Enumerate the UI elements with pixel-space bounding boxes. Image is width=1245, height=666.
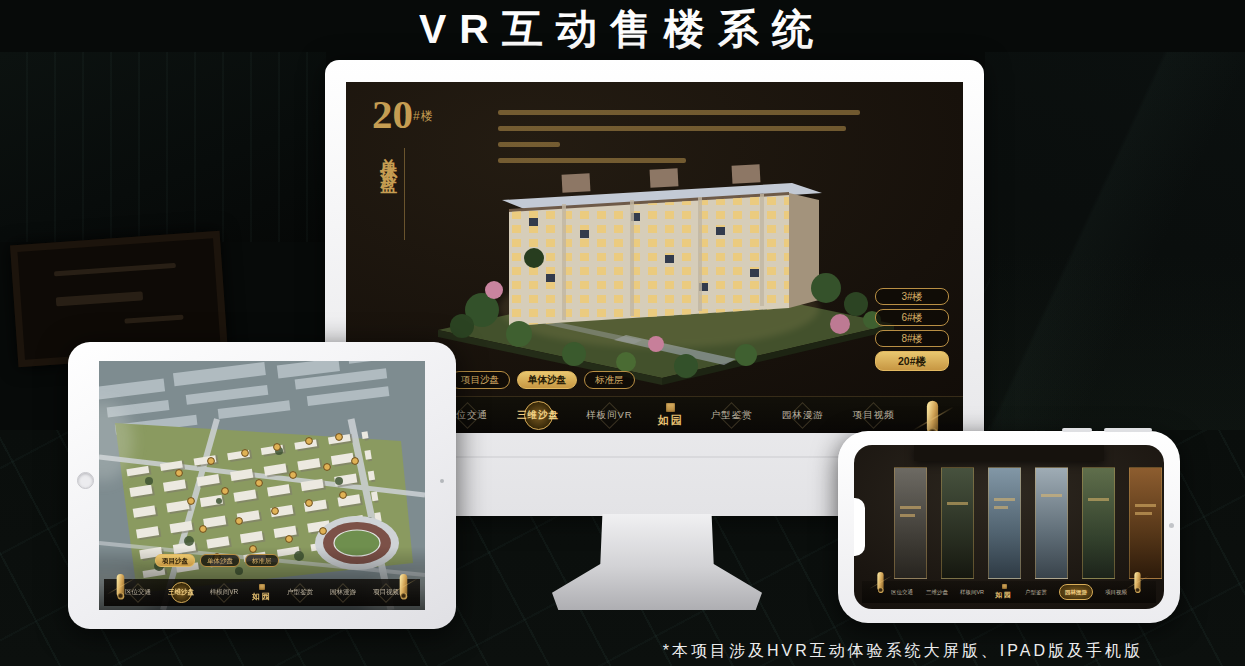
nav-item-3d-sandtable[interactable]: 三维沙盘 [925, 585, 949, 599]
brand-logo: 如园 [252, 584, 272, 602]
nav-item-project-video[interactable]: 项目视频 [851, 401, 897, 429]
seal-stamp-icon [666, 403, 675, 412]
scene-panel[interactable] [941, 467, 974, 579]
brand-logo: 如园 [658, 403, 684, 428]
nav-item-showroom-vr[interactable]: 样板间VR [586, 401, 633, 429]
nav-item-unit-gallery[interactable]: 户型鉴赏 [1024, 585, 1048, 599]
nav-item-location[interactable]: 区位交通 [890, 585, 914, 599]
scene-panel[interactable] [894, 467, 927, 579]
power-button[interactable] [1104, 428, 1152, 432]
camera-icon [440, 479, 444, 483]
nav-item-showroom-vr[interactable]: 样板间VR [209, 583, 239, 603]
aerial-sandtable-view[interactable] [99, 361, 425, 610]
subtab-single-sandtable[interactable]: 单体沙盘 [517, 371, 577, 389]
scene-panel[interactable] [1129, 467, 1162, 579]
nav-item-showroom-vr[interactable]: 样板间VR [960, 585, 984, 599]
nav-item-unit-gallery[interactable]: 户型鉴赏 [285, 583, 315, 603]
floor-button[interactable]: 3#楼 [875, 288, 949, 305]
nav-item-garden-tour[interactable]: 园林漫游 [780, 401, 826, 429]
scene-panel[interactable] [1082, 467, 1115, 579]
section-title-vertical: 单体沙盘 [377, 144, 400, 168]
text-line [498, 110, 860, 115]
subtab-group: 项目沙盘 单体沙盘 标准层 [450, 371, 635, 389]
home-button[interactable] [77, 472, 94, 489]
floor-button[interactable]: 6#楼 [875, 309, 949, 326]
nav-item-garden-tour[interactable]: 园林漫游 [1059, 584, 1093, 600]
nav-item-garden-tour[interactable]: 园林漫游 [328, 583, 358, 603]
floor-button[interactable]: 8#楼 [875, 330, 949, 347]
nav-item-location[interactable]: 区位交通 [123, 583, 153, 603]
tablet-screen: 项目沙盘 单体沙盘 标准层 区位交通 三维沙盘 样板间VR 如园 户型鉴赏 园林… [99, 361, 425, 610]
nav-item-project-video[interactable]: 项目视频 [1104, 585, 1128, 599]
scene-panel[interactable] [988, 467, 1021, 579]
subtab-standard-floor[interactable]: 标准层 [584, 371, 635, 389]
plaque-text-line [56, 291, 143, 306]
subtab-standard-floor[interactable]: 标准层 [245, 554, 279, 567]
text-line [498, 126, 846, 131]
scroll-handle-icon[interactable] [400, 574, 408, 597]
poster-canvas: VR互动售楼系统 20#楼 单体沙盘 [0, 0, 1245, 666]
nav-item-unit-gallery[interactable]: 户型鉴赏 [709, 401, 755, 429]
subtab-single-sandtable[interactable]: 单体沙盘 [200, 554, 240, 567]
plaque-text-line [124, 315, 183, 324]
phone-screen: 区位交通 三维沙盘 样板间VR 如园 户型鉴赏 园林漫游 项目视频 [854, 445, 1164, 609]
nav-item-3d-sandtable[interactable]: 三维沙盘 [166, 583, 196, 603]
subtab-project-sandtable[interactable]: 项目沙盘 [155, 554, 195, 567]
nav-item-3d-sandtable[interactable]: 三维沙盘 [515, 401, 561, 429]
background-photo-right [985, 52, 1245, 452]
seal-stamp-icon [259, 584, 265, 590]
scroll-handle-icon[interactable] [927, 401, 938, 433]
building-number-suffix: #楼 [413, 109, 434, 123]
volume-button[interactable] [1062, 428, 1092, 432]
building-number: 20 [372, 91, 413, 137]
page-title: VR互动售楼系统 [0, 2, 1245, 57]
plaque-text-line [54, 263, 176, 276]
floor-button-active[interactable]: 20#楼 [875, 351, 949, 371]
tablet-device: 项目沙盘 单体沙盘 标准层 区位交通 三维沙盘 样板间VR 如园 户型鉴赏 园林… [68, 342, 456, 629]
scroll-handle-icon[interactable] [1134, 572, 1140, 591]
notch [854, 498, 865, 556]
subtab-group: 项目沙盘 单体沙盘 标准层 [155, 554, 279, 567]
phone-device: 区位交通 三维沙盘 样板间VR 如园 户型鉴赏 园林漫游 项目视频 [838, 431, 1180, 623]
camera-icon [1169, 523, 1174, 528]
scroll-handle-icon[interactable] [877, 572, 883, 591]
nav-item-project-video[interactable]: 项目视频 [371, 583, 401, 603]
heading-divider [404, 148, 405, 240]
brand-logo: 如园 [995, 584, 1013, 600]
seal-stamp-icon [1002, 584, 1007, 589]
main-nav-bar: 区位交通 三维沙盘 样板间VR 如园 户型鉴赏 园林漫游 项目视频 [862, 581, 1156, 603]
scene-panel[interactable] [1035, 467, 1068, 579]
floor-button-group: 3#楼 6#楼 8#楼 20#楼 [875, 288, 949, 371]
footnote-text: *本项目涉及HVR互动体验系统大屏版、IPAD版及手机版 [663, 641, 1143, 662]
background-photo-topleft [0, 52, 326, 242]
scene-panel-carousel [894, 467, 1162, 579]
subtab-project-sandtable[interactable]: 项目沙盘 [450, 371, 510, 389]
interior-ceiling [914, 445, 1104, 461]
main-nav-bar: 区位交通 三维沙盘 样板间VR 如园 户型鉴赏 园林漫游 项目视频 [104, 579, 420, 606]
building-3d-model[interactable] [424, 138, 916, 390]
building-heading: 20#楼 [372, 94, 434, 135]
